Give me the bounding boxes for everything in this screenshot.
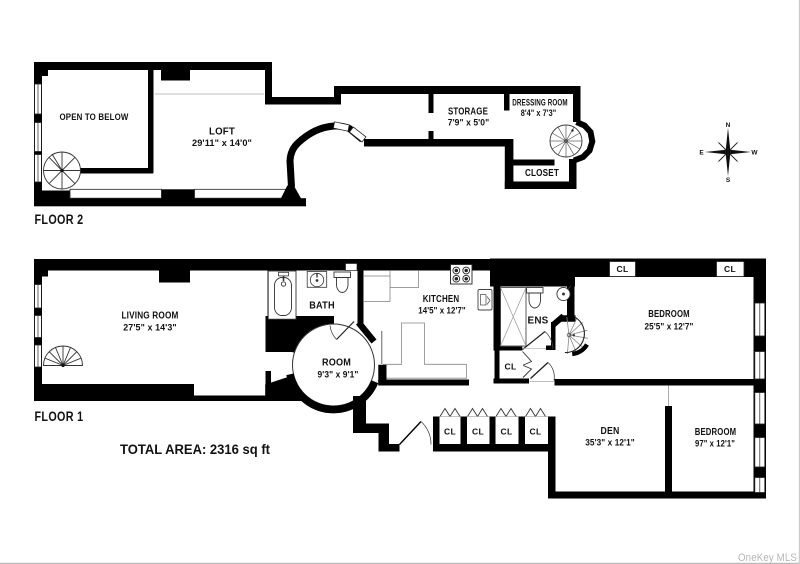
svg-text:27'5" x 14'3": 27'5" x 14'3" bbox=[123, 323, 177, 334]
svg-text:BATH: BATH bbox=[309, 301, 335, 312]
svg-text:CL: CL bbox=[617, 264, 629, 274]
svg-text:CL: CL bbox=[472, 427, 484, 437]
svg-text:KITCHEN: KITCHEN bbox=[423, 294, 460, 305]
svg-text:STORAGE: STORAGE bbox=[448, 107, 488, 118]
svg-text:ROOM: ROOM bbox=[322, 358, 351, 369]
svg-text:8'4" x 7'3": 8'4" x 7'3" bbox=[521, 108, 557, 118]
svg-text:25'5" x 12'7": 25'5" x 12'7" bbox=[645, 322, 694, 333]
svg-text:LIVING ROOM: LIVING ROOM bbox=[122, 311, 179, 322]
svg-text:FLOOR 1: FLOOR 1 bbox=[35, 409, 84, 424]
svg-text:CL: CL bbox=[530, 427, 542, 437]
svg-text:DRESSING ROOM: DRESSING ROOM bbox=[512, 98, 568, 108]
svg-text:W: W bbox=[751, 150, 758, 157]
svg-text:E: E bbox=[699, 150, 704, 157]
svg-text:BEDROOM: BEDROOM bbox=[695, 427, 737, 438]
svg-text:LOFT: LOFT bbox=[209, 127, 235, 138]
svg-text:7'9" x 5'0": 7'9" x 5'0" bbox=[448, 118, 490, 129]
svg-text:14'5" x 12'7": 14'5" x 12'7" bbox=[418, 306, 466, 317]
svg-text:35'3" x 12'1": 35'3" x 12'1" bbox=[585, 438, 635, 449]
svg-text:N: N bbox=[726, 122, 731, 129]
svg-text:BEDROOM: BEDROOM bbox=[648, 309, 690, 320]
svg-text:CL: CL bbox=[724, 264, 736, 274]
svg-text:29'11" x 14'0": 29'11" x 14'0" bbox=[192, 138, 252, 149]
svg-text:DEN: DEN bbox=[601, 426, 620, 437]
svg-text:97" x 12'1": 97" x 12'1" bbox=[695, 439, 735, 450]
svg-text:S: S bbox=[726, 177, 731, 184]
svg-text:OneKey MLS: OneKey MLS bbox=[738, 552, 797, 564]
svg-text:OPEN TO BELOW: OPEN TO BELOW bbox=[60, 112, 129, 123]
svg-text:CL: CL bbox=[444, 427, 456, 437]
svg-text:ENS: ENS bbox=[528, 316, 549, 327]
svg-text:CLOSET: CLOSET bbox=[525, 167, 559, 179]
svg-text:CL: CL bbox=[501, 427, 513, 437]
svg-text:FLOOR 2: FLOOR 2 bbox=[35, 212, 84, 227]
svg-text:CL: CL bbox=[505, 362, 517, 372]
svg-text:TOTAL AREA: 2316 sq ft: TOTAL AREA: 2316 sq ft bbox=[120, 442, 270, 457]
svg-text:9'3" x 9'1": 9'3" x 9'1" bbox=[318, 370, 359, 381]
